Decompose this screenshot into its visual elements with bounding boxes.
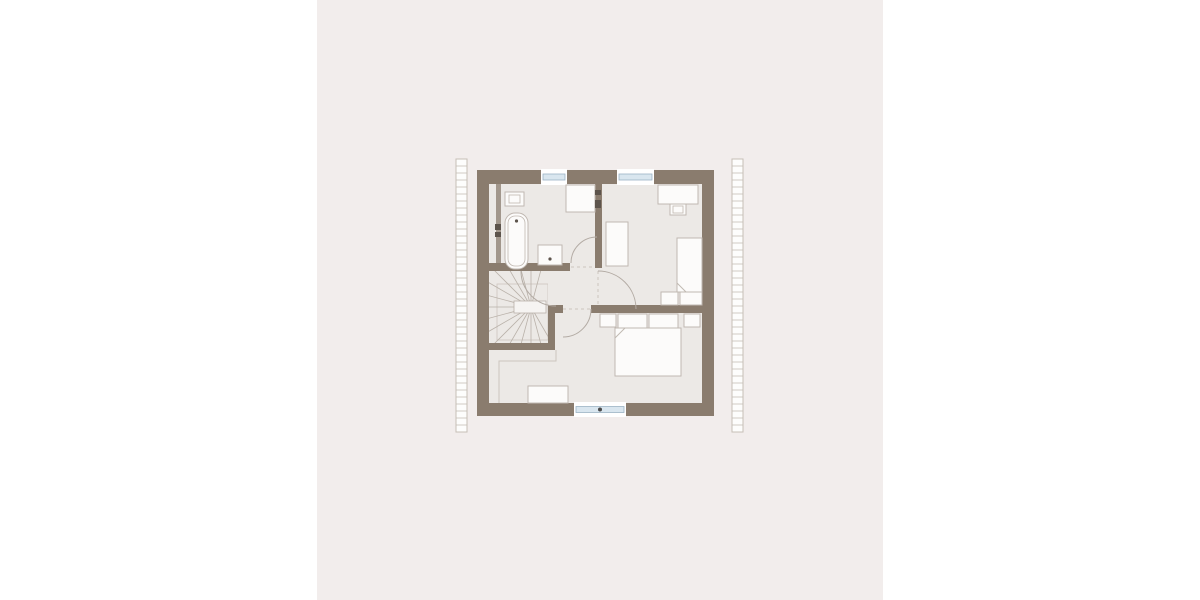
dresser-body xyxy=(528,386,568,403)
desk xyxy=(658,185,698,204)
floor-plan xyxy=(0,0,1200,600)
wall-exterior-left xyxy=(477,170,489,416)
window-handle xyxy=(598,408,602,412)
hatch-outline xyxy=(732,159,743,432)
window-top-large xyxy=(617,169,654,185)
wall-exterior-top xyxy=(477,170,714,184)
dresser xyxy=(528,386,568,403)
wall-bathroom-east xyxy=(595,184,602,268)
wardrobe xyxy=(606,222,628,266)
pillow-left xyxy=(618,314,647,328)
pillow-left-body xyxy=(618,314,647,328)
pillow-right xyxy=(649,314,678,328)
wardrobe-body xyxy=(606,222,628,266)
window-glazing xyxy=(543,174,565,180)
floor-plan-page xyxy=(0,0,1200,600)
shaft-mark xyxy=(495,224,501,230)
wall-exterior-right xyxy=(702,170,714,416)
washbasin xyxy=(538,245,562,265)
shower xyxy=(566,185,595,212)
shower-fitting-mark xyxy=(595,190,601,195)
bathtub xyxy=(505,213,528,269)
wall-stair-south xyxy=(489,343,555,350)
window-bottom xyxy=(574,402,626,417)
wall-bedroom-north-cap xyxy=(555,305,563,313)
washbasin-drain xyxy=(548,257,551,260)
window-top-small xyxy=(541,169,567,185)
nightstand-right xyxy=(684,314,700,327)
washbasin-body xyxy=(538,245,562,265)
toilet-body xyxy=(505,192,524,206)
single-bed-body xyxy=(677,238,702,292)
shower-fitting-mark xyxy=(595,200,601,208)
single-bed xyxy=(677,238,702,292)
nightstand-left-body xyxy=(600,314,616,327)
pillow-right-body xyxy=(649,314,678,328)
chest-left xyxy=(661,292,678,305)
wall-bedroom-north-east xyxy=(591,305,702,313)
window-glazing xyxy=(619,174,652,180)
nightstand-left xyxy=(600,314,616,327)
shaft-mark xyxy=(495,232,501,237)
wall-installation-shaft xyxy=(496,184,501,263)
chest-right xyxy=(680,292,702,305)
nightstand-right-body xyxy=(684,314,700,327)
bathtub-drain xyxy=(515,219,518,222)
double-bed xyxy=(615,328,681,376)
chest-left-body xyxy=(661,292,678,305)
hatch-outline xyxy=(456,159,467,432)
desk-chair xyxy=(670,204,686,215)
roof-edge-strip-right xyxy=(732,159,743,432)
desk-body xyxy=(658,185,698,204)
chest-right-body xyxy=(680,292,702,305)
double-bed-body xyxy=(615,328,681,376)
shower-body xyxy=(566,185,595,212)
roof-edge-strip-left xyxy=(456,159,467,432)
toilet xyxy=(505,192,524,206)
